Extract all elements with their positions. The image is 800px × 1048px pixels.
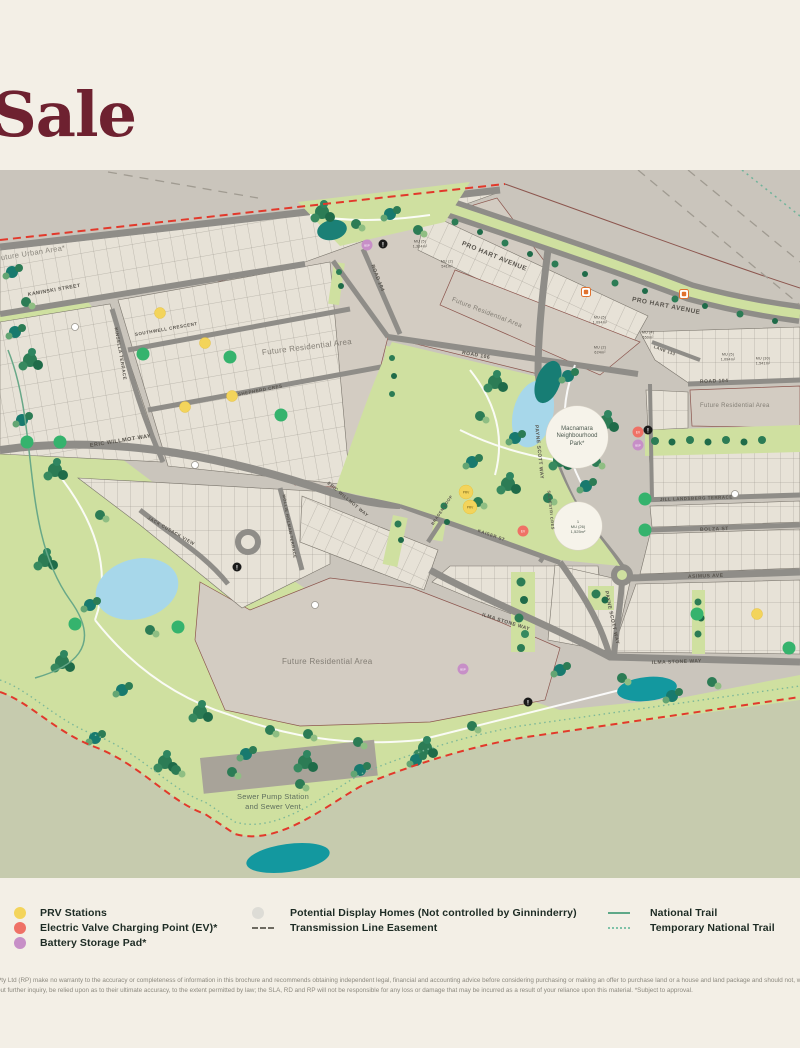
masterplan-map: PRV PRV EV EV BSP BSP BSP ! ! ! ! PRO HA…: [0, 170, 800, 878]
mu-lot-label: MU (5)1,334m²: [413, 239, 428, 248]
roundabout: [614, 567, 630, 583]
legend-column-3: National Trail Temporary National Trail: [608, 905, 775, 935]
lot-name: MU (2): [441, 259, 453, 264]
mu-lot-label: MU (2)624m²: [594, 345, 606, 354]
legend-label: Transmission Line Easement: [290, 922, 437, 934]
lot-size: 1,334m²: [413, 244, 428, 249]
lot-size: 1,541m²: [756, 361, 771, 366]
legend-label: Temporary National Trail: [650, 922, 775, 934]
legend-item-national-trail: National Trail: [608, 905, 775, 920]
lot-name: MU (30): [756, 356, 771, 361]
transmission-swatch-icon: [252, 927, 290, 929]
legend-label: PRV Stations: [40, 907, 107, 919]
info-icon: !: [647, 428, 649, 435]
legend-label: National Trail: [650, 907, 717, 919]
cul-de-sac: [238, 532, 258, 552]
lot-size: 650m²: [642, 335, 654, 340]
prv-marker-label: PRV: [463, 491, 470, 495]
sewer-label-line: and Sewer Vent: [237, 802, 309, 812]
lot-name: MU (4): [642, 330, 654, 335]
page-title: Sale: [0, 78, 136, 151]
legend-column-2: Potential Display Homes (Not controlled …: [252, 905, 577, 935]
mu26-lot-label: 1 MU (26) 1,525m²: [554, 502, 602, 550]
bsp-marker-label: BSP: [460, 668, 466, 672]
lot-name: MU (2): [594, 345, 606, 350]
area-label-future-residential: Future Residential Area: [700, 403, 770, 409]
street-label-road-104: ROAD 104: [700, 378, 729, 385]
temporary-trail-swatch-icon: [608, 927, 650, 929]
info-icon: !: [236, 565, 238, 572]
display-homes-swatch-icon: [252, 907, 290, 919]
bsp-marker-label: BSP: [635, 444, 641, 448]
lot-size: 1,094m²: [721, 357, 736, 362]
street-label-bolza-st: BOLZA ST: [700, 526, 729, 533]
legend-item-temporary-trail: Temporary National Trail: [608, 920, 775, 935]
disclaimer: Pty Ltd (RP) make no warranty to the acc…: [0, 976, 800, 996]
national-trail-swatch-icon: [608, 912, 650, 914]
sewer-label-line: Sewer Pump Station: [237, 792, 309, 802]
map-graphics: PRV PRV EV EV BSP BSP BSP ! ! ! !: [0, 170, 800, 878]
brochure-page: { "title": "Sale", "map": { "outside_lab…: [0, 0, 800, 1048]
legend-label: Battery Storage Pad*: [40, 937, 146, 949]
lot-name: MU (5): [413, 239, 428, 244]
legend-item-display-homes: Potential Display Homes (Not controlled …: [252, 905, 577, 920]
disclaimer-line-2: out further inquiry, be relied upon as t…: [0, 986, 800, 996]
street-label-asimus-ave: ASIMUS AVE: [688, 573, 724, 580]
prv-swatch-icon: [14, 907, 40, 919]
mu-lot-label: MU (4)650m²: [642, 330, 654, 339]
mu-lot-label: MU (2)541m²: [441, 259, 453, 268]
bsp-swatch-icon: [14, 937, 40, 949]
lot-size: 541m²: [441, 264, 453, 269]
legend-label: Potential Display Homes (Not controlled …: [290, 907, 577, 919]
lot-name: MU (5): [593, 315, 608, 320]
mu-lot-label: MU (5)1,094m²: [721, 352, 736, 361]
info-icon: !: [382, 242, 384, 249]
mu-lot-label: MU (5)1,094m²: [593, 315, 608, 324]
legend-column-1: PRV Stations Electric Valve Charging Poi…: [14, 905, 217, 950]
page-header: Sale: [0, 0, 800, 170]
prv-marker-label: PRV: [467, 506, 474, 510]
disclaimer-line-1: Pty Ltd (RP) make no warranty to the acc…: [0, 976, 800, 986]
legend-item-prv: PRV Stations: [14, 905, 217, 920]
lot-size: 1,525m²: [571, 529, 586, 534]
park-label-line: Neighbourhood: [556, 433, 597, 441]
map-legend: PRV Stations Electric Valve Charging Poi…: [0, 878, 800, 970]
legend-item-transmission: Transmission Line Easement: [252, 920, 577, 935]
sewer-station-label: Sewer Pump Station and Sewer Vent: [237, 792, 309, 812]
park-label-line: Macnamara: [561, 426, 593, 434]
park-label-line: Park*: [570, 441, 585, 449]
legend-item-ev: Electric Valve Charging Point (EV)*: [14, 920, 217, 935]
macnamara-park-label: Macnamara Neighbourhood Park*: [546, 406, 608, 468]
mu-lot-label: MU (30)1,541m²: [756, 356, 771, 365]
lot-size: 1,094m²: [593, 320, 608, 325]
lot-size: 624m²: [594, 350, 606, 355]
ev-swatch-icon: [14, 922, 40, 934]
lot-name: MU (5): [721, 352, 736, 357]
area-label-future-residential: Future Residential Area: [282, 657, 373, 666]
bsp-marker-label: BSP: [364, 244, 370, 248]
info-icon: !: [527, 700, 529, 707]
legend-item-bsp: Battery Storage Pad*: [14, 935, 217, 950]
legend-label: Electric Valve Charging Point (EV)*: [40, 922, 217, 934]
